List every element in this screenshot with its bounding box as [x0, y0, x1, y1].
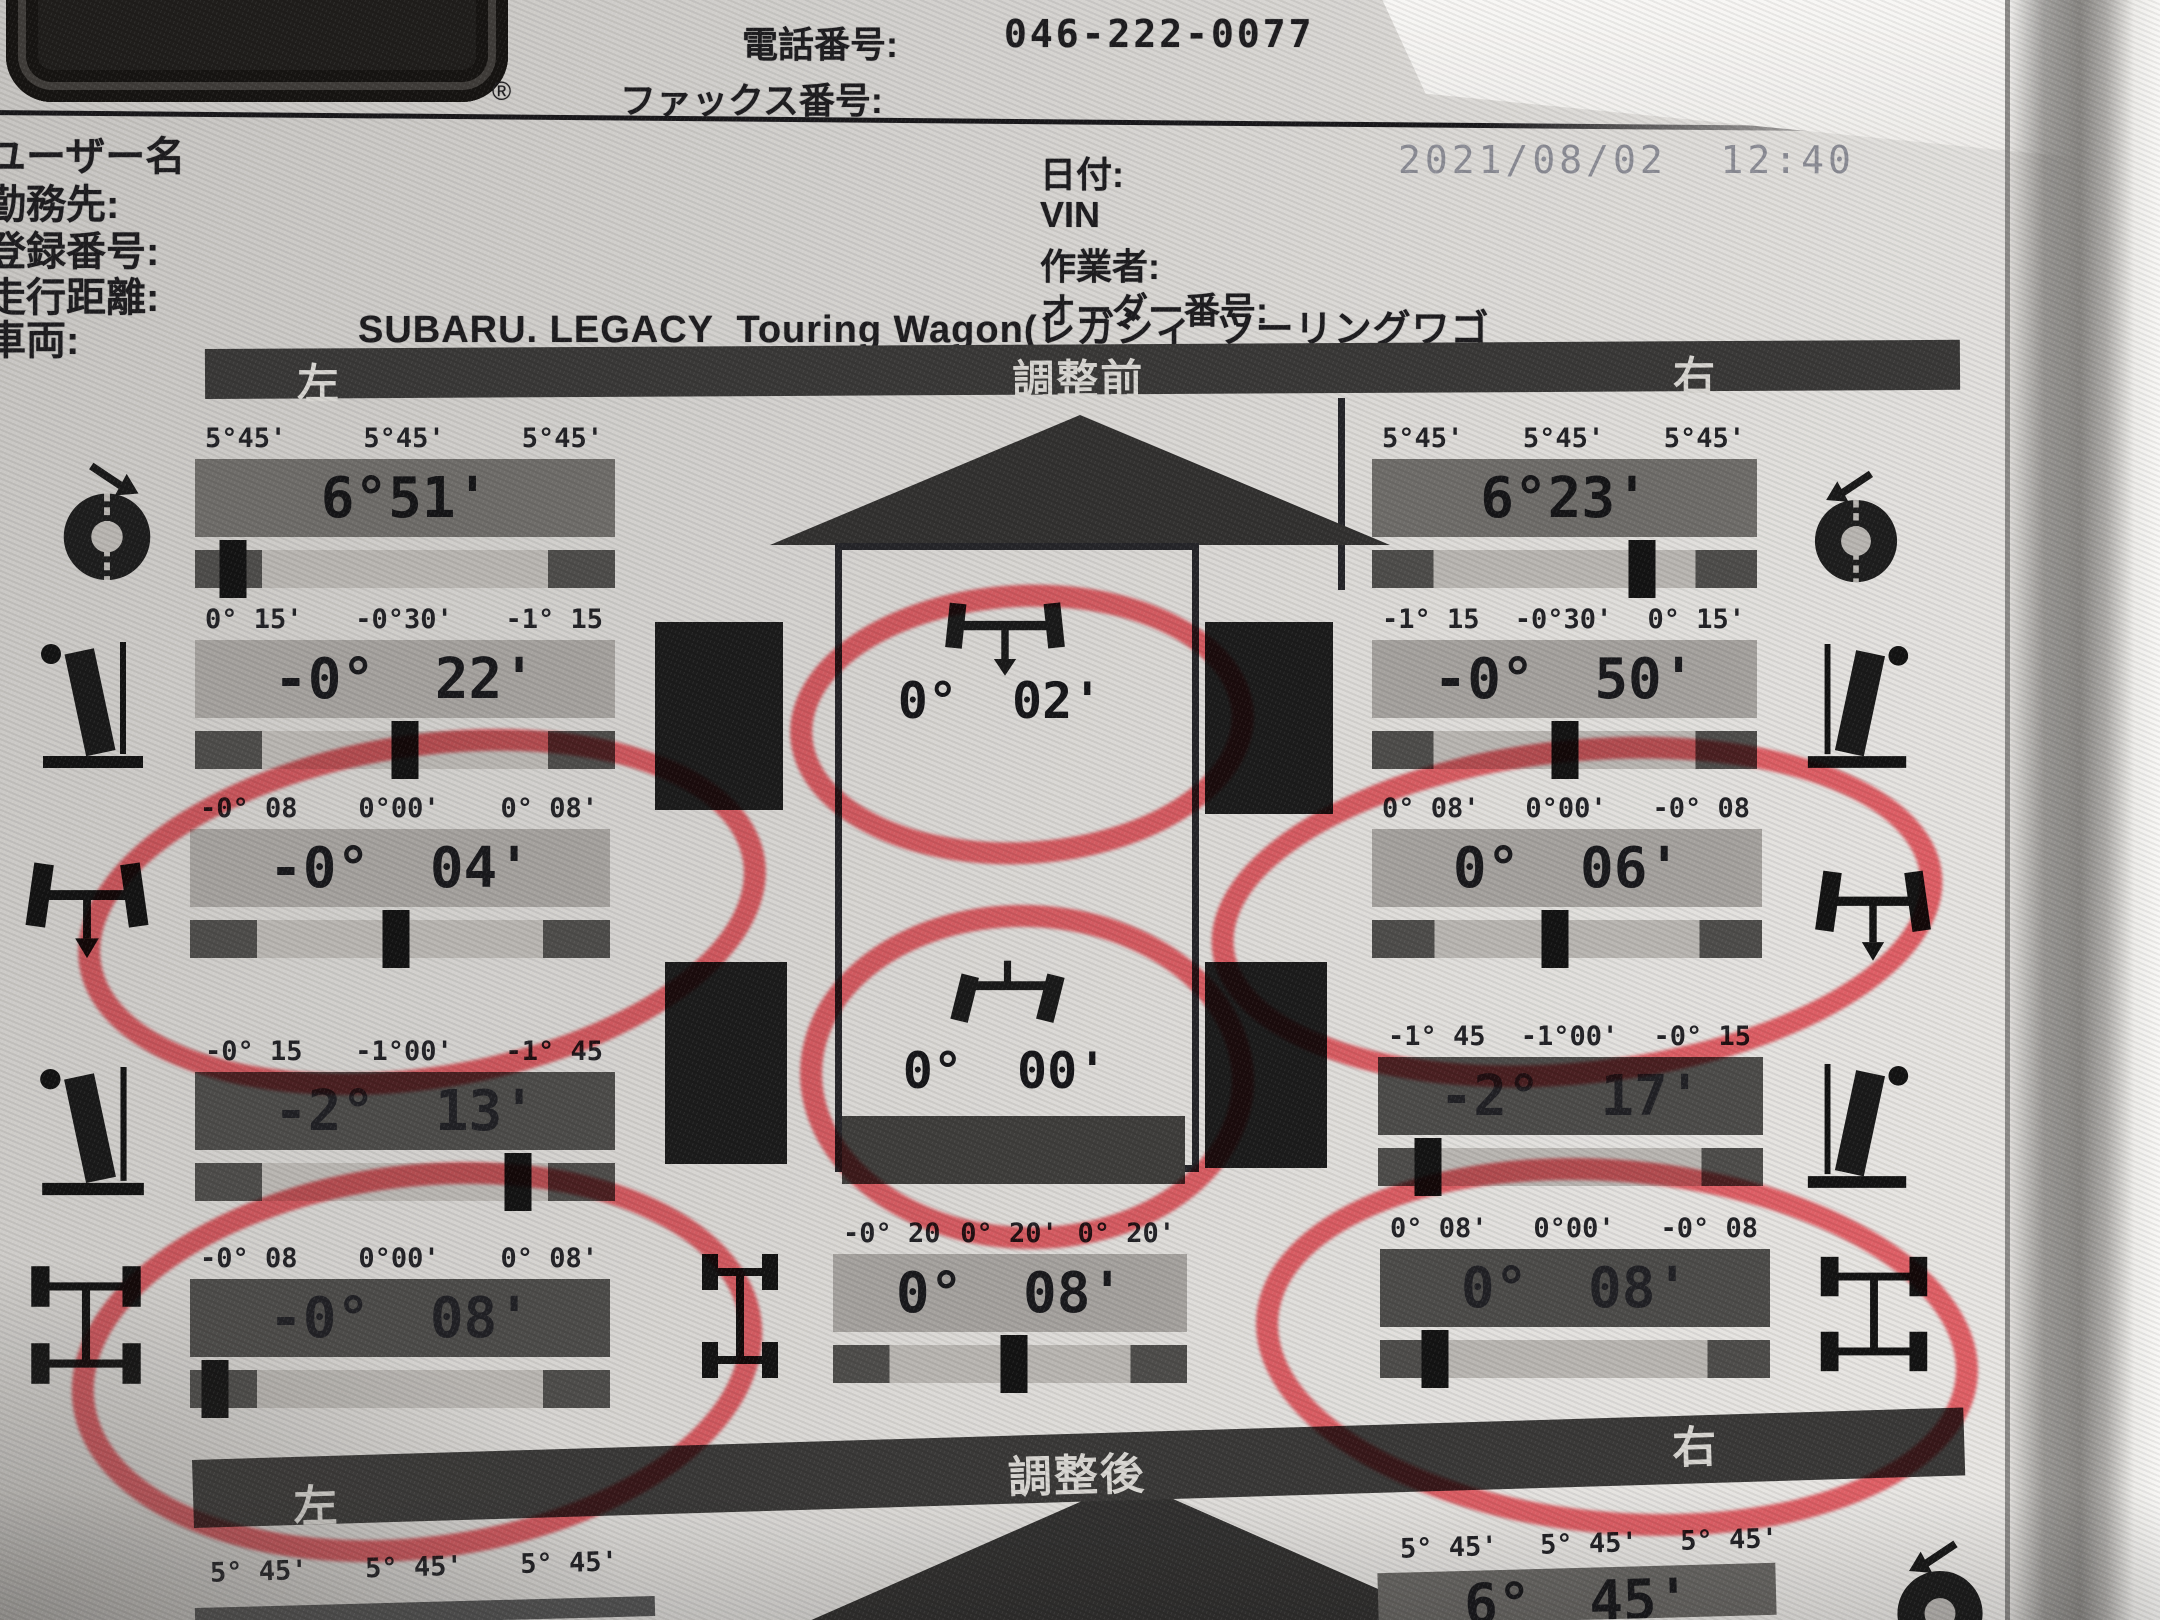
tick-label: 5° 45' — [520, 1546, 618, 1580]
alignment-report-photo: BEAN ® 電話番号: 046-222-0077 ファックス番号: ユーザー名… — [0, 0, 2160, 1620]
gauge-marker — [219, 540, 246, 598]
before-adjustment-header: 左 調整前 右 — [205, 340, 1960, 399]
camber-icon — [1800, 640, 1918, 770]
gauge-value: 0° 08' — [896, 1261, 1124, 1326]
john-bean-logo: BEAN — [6, 0, 508, 102]
tick-label: 5° 45' — [210, 1555, 308, 1589]
gauge-right-caster: 5°45'5°45'5°45' 6°23' — [1372, 423, 1757, 588]
gauge-ticks: -1° 15-0°30'0° 15' — [1372, 604, 1757, 635]
header-rule-line — [0, 110, 1948, 132]
gauge-scale — [833, 1345, 1187, 1383]
gauge-left-caster: 5°45'5°45'5°45' 6°51' — [195, 423, 615, 588]
gauge-scale — [195, 550, 615, 588]
gauge-value-bar: 6°23' — [1372, 459, 1757, 537]
vin-label: VIN — [1040, 194, 1100, 236]
gauge-value: -0° 50' — [1433, 647, 1695, 712]
tick-label: 0° 15' — [205, 604, 303, 635]
left-side-label: 左 — [297, 350, 341, 411]
rear-camber-icon — [1800, 1058, 1918, 1192]
tick-label: 5°45' — [1664, 423, 1745, 454]
before-adjustment-title: 調整前 — [1012, 346, 1144, 408]
tick-label: -0°30' — [355, 604, 453, 635]
gauge-ticks: 0° 15'-0°30'-1° 15 — [195, 604, 615, 635]
gauge-value-bar: 6°51' — [195, 459, 615, 537]
gauge-marker — [1628, 540, 1655, 598]
date-label: 日付: — [1040, 146, 1124, 198]
logo-text: BEAN — [96, 0, 393, 18]
fax-label: ファックス番号: — [620, 72, 883, 124]
gauge-value: 6°51' — [321, 466, 490, 531]
registered-trademark: ® — [492, 76, 511, 107]
tick-label: -1° 15 — [1382, 604, 1480, 635]
after-left-caster-bar-partial — [195, 1596, 655, 1620]
caster-wheel-icon — [1800, 468, 1912, 588]
right-side-label: 右 — [1673, 343, 1717, 404]
caster-wheel-icon — [1880, 1540, 2000, 1620]
tick-label: 0° 15' — [1647, 604, 1745, 635]
date-value: 2021/08/02 12:40 — [1398, 138, 1855, 182]
gauge-value-bar: -0° 22' — [195, 640, 615, 718]
gauge-value-bar: -0° 50' — [1372, 640, 1757, 718]
vehicle-label: 車両: — [0, 308, 79, 366]
gauge-scale — [1372, 550, 1757, 588]
phone-value: 046-222-0077 — [1004, 12, 1315, 56]
marker-circle-left-rear-toe — [49, 1124, 786, 1600]
tick-label: -1° 15 — [505, 604, 603, 635]
gauge-value: 6° 45' — [1377, 1565, 1776, 1620]
gauge-value: 6°23' — [1480, 466, 1649, 531]
tick-label: 5°45' — [205, 423, 286, 454]
gauge-ticks: 5°45'5°45'5°45' — [195, 423, 615, 454]
tick-label: 5° 45' — [1400, 1531, 1498, 1565]
tick-label: 5°45' — [522, 423, 603, 454]
phone-label: 電話番号: — [742, 16, 898, 68]
paper-edge-shadow — [2005, 0, 2160, 1620]
tick-label: 5°45' — [1523, 423, 1604, 454]
gauge-marker — [1000, 1335, 1027, 1393]
gauge-value: -0° 22' — [274, 647, 536, 712]
caster-wheel-icon — [48, 462, 166, 584]
tick-label: 5°45' — [1382, 423, 1463, 454]
after-adjustment-title: 調整後 — [1007, 1438, 1147, 1506]
rear-camber-icon — [30, 1062, 152, 1198]
tick-label: 5°45' — [363, 423, 444, 454]
camber-icon — [30, 638, 152, 770]
gauge-value-bar: 0° 08' — [833, 1254, 1187, 1332]
tick-label: -0°30' — [1515, 604, 1613, 635]
car-roof-triangle — [770, 415, 1390, 545]
gauge-ticks: 5°45'5°45'5°45' — [1372, 423, 1757, 454]
after-right-caster-bar-partial: 6° 45' — [1377, 1563, 1776, 1620]
